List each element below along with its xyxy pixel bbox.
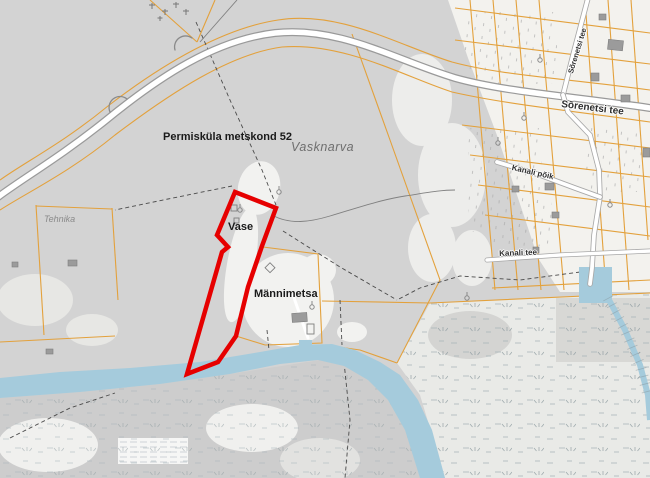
- map-graphics: [0, 0, 650, 478]
- map-canvas[interactable]: Permisküla metskond 52 Vasknarva Vase Mä…: [0, 0, 650, 478]
